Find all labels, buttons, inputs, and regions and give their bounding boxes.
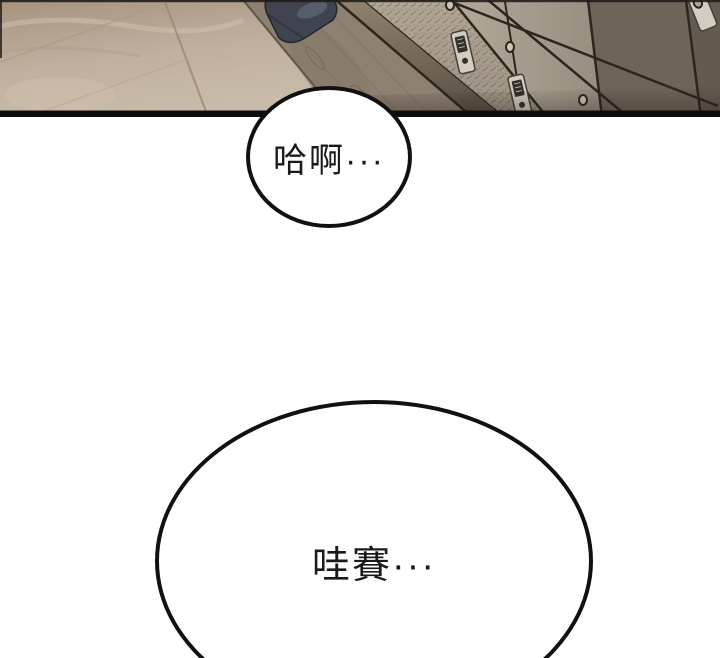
marble-patch (5, 77, 115, 113)
speech-bubble-1: 哈啊··· (246, 86, 412, 228)
locker-handle-icon (506, 42, 514, 52)
comic-page: 哈啊··· 哇賽··· (0, 0, 720, 658)
speech-bubble-1-text: 哈啊··· (273, 133, 385, 182)
speech-bubble-2-text: 哇賽··· (312, 534, 436, 589)
speech-bubble-2: 哇賽··· (155, 400, 593, 658)
panel-left-border (0, 0, 2, 58)
panel-top-border (0, 0, 720, 2)
